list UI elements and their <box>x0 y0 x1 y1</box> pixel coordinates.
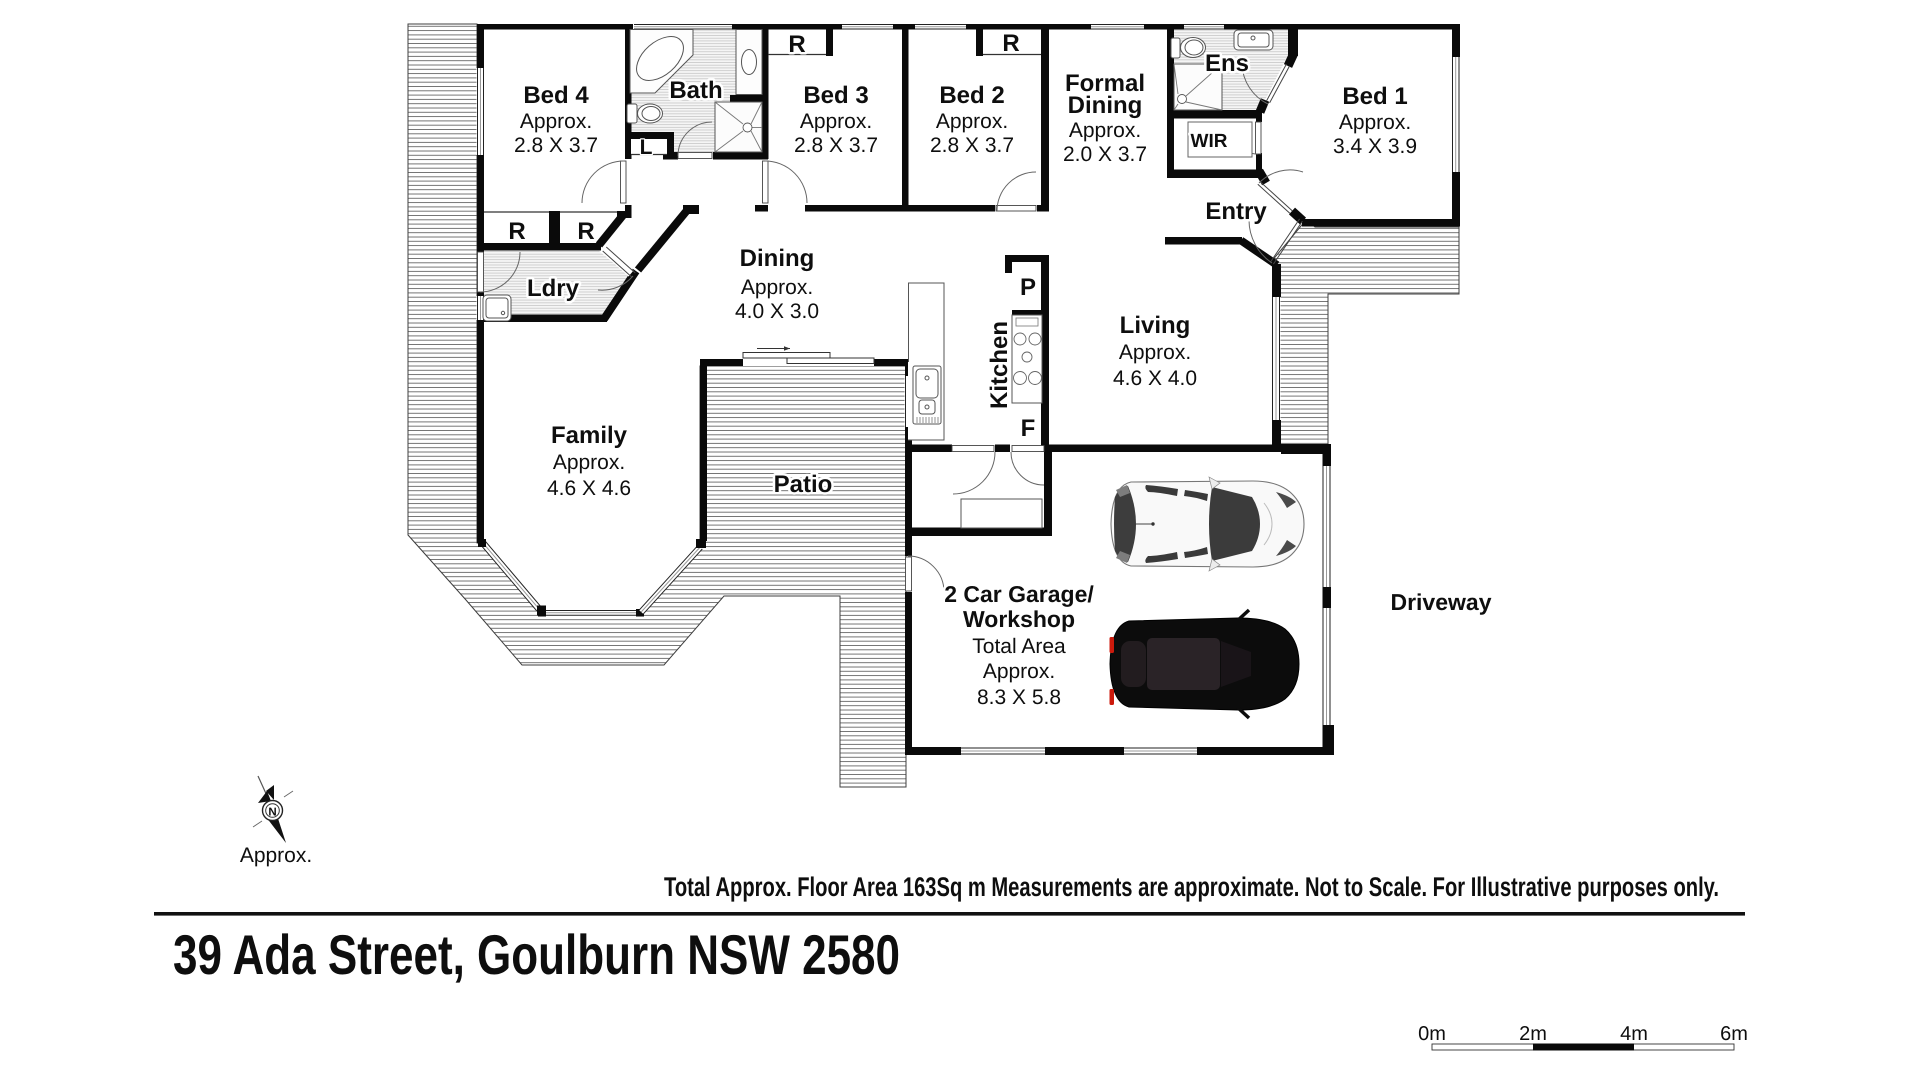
svg-text:Bed 2: Bed 2 <box>939 82 1004 109</box>
svg-text:Approx.: Approx. <box>1339 111 1411 134</box>
svg-text:6m: 6m <box>1720 1023 1748 1045</box>
svg-text:Driveway: Driveway <box>1390 589 1491 615</box>
svg-text:Approx.: Approx. <box>983 660 1055 683</box>
svg-text:Bath: Bath <box>669 77 722 104</box>
svg-text:Family: Family <box>551 422 628 449</box>
svg-text:4.6 X 4.6: 4.6 X 4.6 <box>547 477 631 500</box>
svg-text:Total Approx. Floor Area 163Sq: Total Approx. Floor Area 163Sq m Measure… <box>664 872 1719 902</box>
svg-text:2.0 X 3.7: 2.0 X 3.7 <box>1063 143 1147 166</box>
svg-text:Bed 3: Bed 3 <box>803 82 868 109</box>
svg-text:3.4 X 3.9: 3.4 X 3.9 <box>1333 135 1417 158</box>
svg-text:8.3 X 5.8: 8.3 X 5.8 <box>977 686 1061 709</box>
svg-text:4.6 X 4.0: 4.6 X 4.0 <box>1113 367 1197 390</box>
svg-text:P: P <box>1020 274 1036 301</box>
svg-text:Ldry: Ldry <box>527 275 580 302</box>
svg-text:R: R <box>577 218 594 245</box>
svg-text:Patio: Patio <box>774 471 833 498</box>
svg-text:Approx.: Approx. <box>240 844 312 867</box>
svg-text:Dining: Dining <box>1068 92 1143 119</box>
svg-text:Approx.: Approx. <box>1119 341 1191 364</box>
svg-text:2.8 X 3.7: 2.8 X 3.7 <box>514 134 598 157</box>
svg-text:2m: 2m <box>1519 1023 1547 1045</box>
svg-text:2 Car Garage/: 2 Car Garage/ <box>944 581 1094 607</box>
svg-text:39 Ada Street, Goulburn NSW 25: 39 Ada Street, Goulburn NSW 2580 <box>173 923 900 986</box>
svg-text:Workshop: Workshop <box>963 606 1075 632</box>
svg-text:Total Area: Total Area <box>972 635 1066 658</box>
svg-text:Bed 1: Bed 1 <box>1342 83 1407 110</box>
svg-text:N: N <box>268 807 276 819</box>
svg-text:2.8 X 3.7: 2.8 X 3.7 <box>794 134 878 157</box>
svg-text:Bed 4: Bed 4 <box>523 82 589 109</box>
svg-text:R: R <box>1002 30 1019 57</box>
svg-text:Approx.: Approx. <box>936 110 1008 133</box>
svg-text:Ens: Ens <box>1205 50 1249 77</box>
svg-text:L: L <box>640 136 653 159</box>
svg-text:4m: 4m <box>1620 1023 1648 1045</box>
svg-text:Approx.: Approx. <box>741 276 813 299</box>
svg-text:Kitchen: Kitchen <box>986 321 1013 409</box>
svg-text:0m: 0m <box>1418 1023 1446 1045</box>
svg-text:Approx.: Approx. <box>1069 119 1141 142</box>
svg-text:WIR: WIR <box>1191 131 1228 152</box>
svg-text:F: F <box>1021 415 1036 442</box>
svg-text:R: R <box>508 218 525 245</box>
svg-text:2.8 X 3.7: 2.8 X 3.7 <box>930 134 1014 157</box>
svg-text:4.0 X 3.0: 4.0 X 3.0 <box>735 300 819 323</box>
svg-text:Approx.: Approx. <box>800 110 872 133</box>
svg-text:Entry: Entry <box>1205 198 1267 225</box>
svg-text:Dining: Dining <box>740 245 815 272</box>
svg-text:Living: Living <box>1120 312 1191 339</box>
svg-text:Approx.: Approx. <box>520 110 592 133</box>
svg-text:R: R <box>788 31 805 58</box>
svg-text:Approx.: Approx. <box>553 451 625 474</box>
